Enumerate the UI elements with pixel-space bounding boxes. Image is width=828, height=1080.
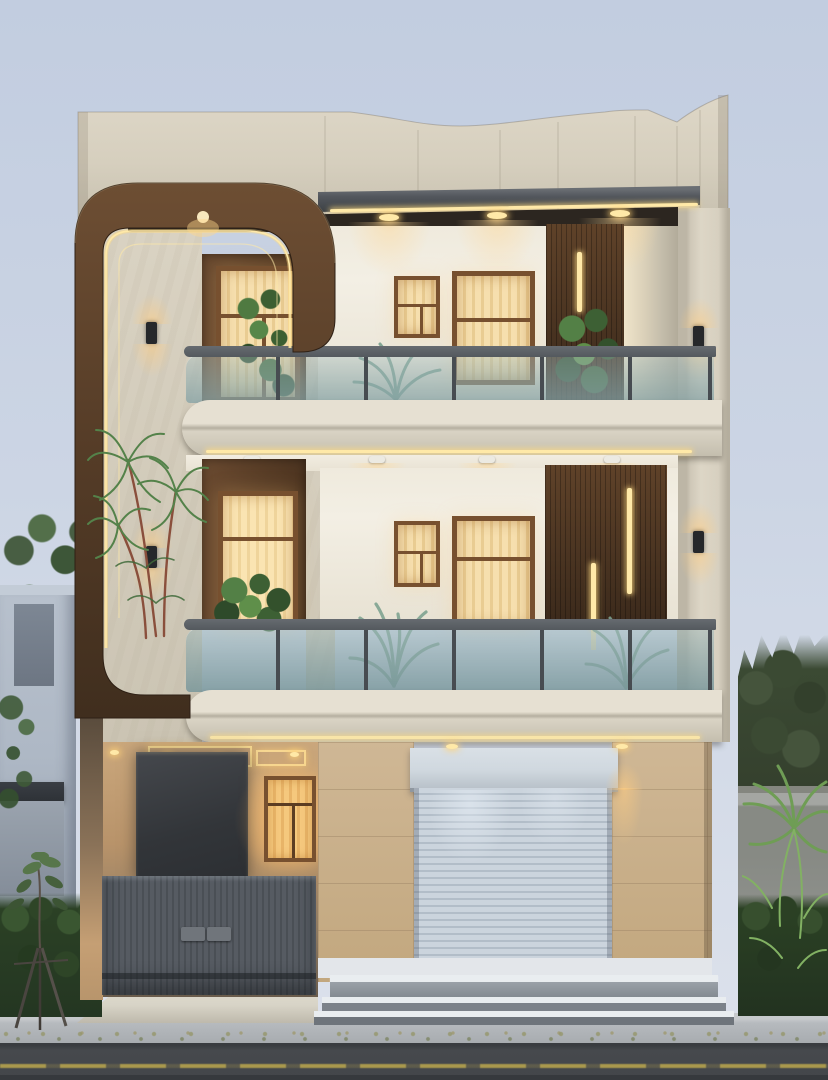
road-yellow-line — [0, 1064, 828, 1068]
ground-pier-left-tiles — [318, 742, 414, 982]
window-2f-small — [394, 276, 440, 338]
shutter-light-glow-2 — [520, 788, 590, 848]
gate-handle-left — [181, 927, 205, 941]
downlight-2f-1 — [379, 214, 399, 221]
step-1-tread — [330, 975, 718, 982]
sidewalk-moss-speckles — [0, 1029, 828, 1044]
step-2-riser — [322, 1003, 726, 1011]
railing-post — [364, 357, 368, 402]
render-scene — [0, 0, 828, 1080]
downlight-2f-2 — [487, 212, 507, 219]
railing-post — [628, 357, 632, 402]
gate-handle-right — [207, 927, 231, 941]
mullion-v — [292, 803, 295, 858]
downlight-gf-2 — [616, 744, 628, 749]
mullion-h — [457, 557, 530, 561]
railing-post — [540, 357, 544, 402]
railing-post — [708, 630, 712, 691]
balcony-1f-led — [210, 736, 700, 739]
puck-light-1f-3 — [479, 456, 495, 463]
mullion-h — [398, 551, 436, 554]
wall-glow-right-of-shutter — [600, 788, 648, 868]
sconce-2f-right-upglow — [673, 286, 725, 328]
puck-light-1f-2 — [369, 456, 385, 463]
mullion-h — [268, 803, 312, 806]
sconce-1f-right-upglow — [673, 491, 725, 533]
palm-right — [742, 758, 828, 1008]
window-1f-door — [452, 516, 535, 630]
mullion-v — [420, 304, 423, 334]
mullion-h — [457, 318, 530, 322]
sconce-1f-right — [693, 531, 704, 553]
neighbor-window-void — [14, 604, 54, 686]
railing-post — [452, 630, 456, 691]
palm-plants-left-pier — [86, 418, 211, 640]
entry-ramp — [77, 993, 318, 1023]
puck-light-1f-4 — [604, 456, 620, 463]
shutter-header-box — [410, 748, 618, 792]
porch-window — [264, 776, 316, 862]
mullion-h — [398, 304, 436, 307]
sapling-with-stakes — [2, 852, 82, 1032]
ground-left-pier — [80, 718, 103, 1000]
step-3-riser — [314, 1017, 734, 1025]
railing-post — [540, 630, 544, 691]
downlight-gf-1 — [446, 744, 458, 749]
railing-post — [452, 357, 456, 402]
sconce-1f-right-downglow — [673, 553, 725, 599]
wall-glow-right-of-shutter-up — [600, 752, 648, 790]
downlight-2f-3 — [610, 210, 630, 217]
railing-post — [708, 357, 712, 402]
step-1-riser — [330, 982, 718, 997]
gate-bottom-rail — [102, 973, 316, 979]
road-bottom-band — [0, 1075, 828, 1080]
shutter-light-glow-1 — [428, 790, 512, 864]
neighbor-parapet-edge — [0, 585, 76, 595]
porch-downlight-1 — [110, 750, 119, 755]
railing-post — [364, 630, 368, 691]
porch-downlight-4 — [290, 752, 299, 757]
overhanging-leaves-left — [0, 688, 44, 818]
sconce-2f-right — [693, 326, 704, 348]
railing-post — [628, 630, 632, 691]
ground-right-edge-shade — [704, 742, 712, 982]
